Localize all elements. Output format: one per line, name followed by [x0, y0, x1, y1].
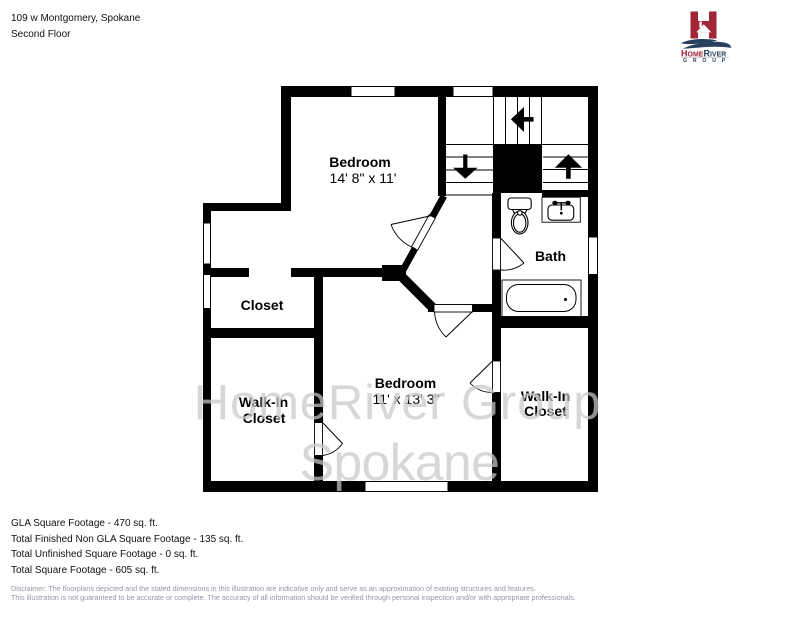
svg-text:Bath: Bath — [535, 248, 566, 264]
svg-text:Spokane: Spokane — [299, 434, 499, 492]
svg-text:14' 8" x 11': 14' 8" x 11' — [330, 170, 397, 186]
svg-text:HomeRiver Group: HomeRiver Group — [194, 376, 602, 430]
svg-text:Bedroom: Bedroom — [329, 154, 390, 170]
svg-text:Closet: Closet — [241, 297, 284, 313]
svg-text:GROUP: GROUP — [683, 58, 731, 64]
